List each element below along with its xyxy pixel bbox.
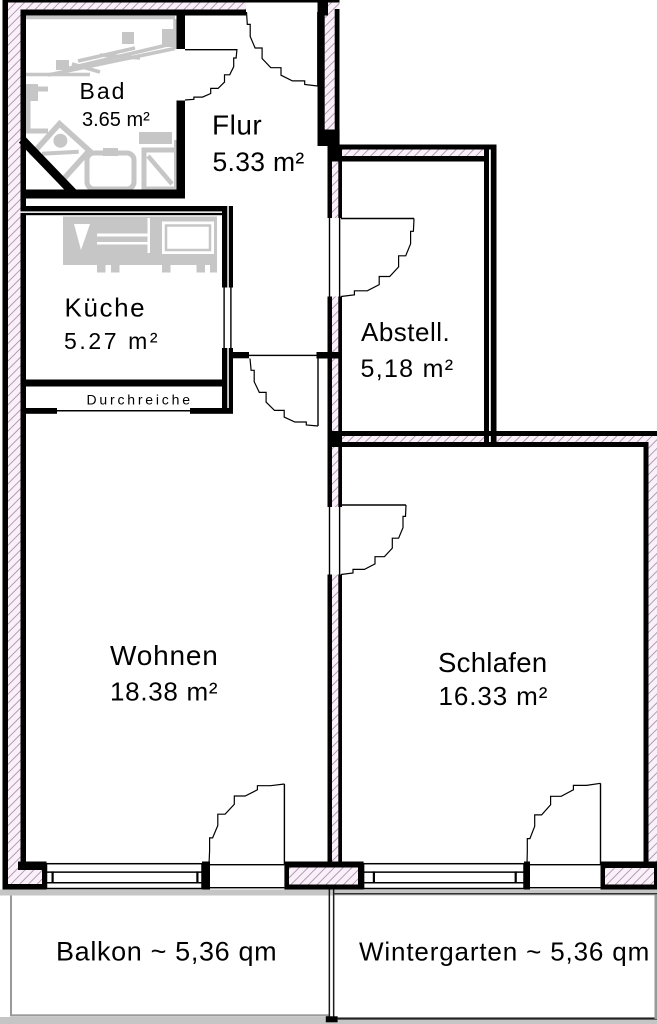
svg-text:Flur: Flur xyxy=(212,110,262,141)
svg-text:5,18 m²: 5,18 m² xyxy=(361,355,455,383)
svg-text:Schlafen: Schlafen xyxy=(438,647,547,678)
svg-text:5.33 m²: 5.33 m² xyxy=(213,147,305,177)
svg-text:3.65 m²: 3.65 m² xyxy=(82,109,150,131)
svg-text:5.27 m²: 5.27 m² xyxy=(64,328,160,354)
svg-text:16.33 m²: 16.33 m² xyxy=(439,681,549,711)
svg-text:Wintergarten ~ 5,36 qm: Wintergarten ~ 5,36 qm xyxy=(359,937,650,967)
svg-text:Küche: Küche xyxy=(65,293,147,323)
svg-text:18.38 m²: 18.38 m² xyxy=(110,677,218,707)
svg-text:Durchreiche: Durchreiche xyxy=(87,392,193,408)
svg-text:Bad: Bad xyxy=(80,78,127,104)
svg-text:Balkon ~ 5,36 qm: Balkon ~ 5,36 qm xyxy=(56,937,277,967)
svg-text:Abstell.: Abstell. xyxy=(361,317,450,347)
svg-text:Wohnen: Wohnen xyxy=(110,640,219,671)
